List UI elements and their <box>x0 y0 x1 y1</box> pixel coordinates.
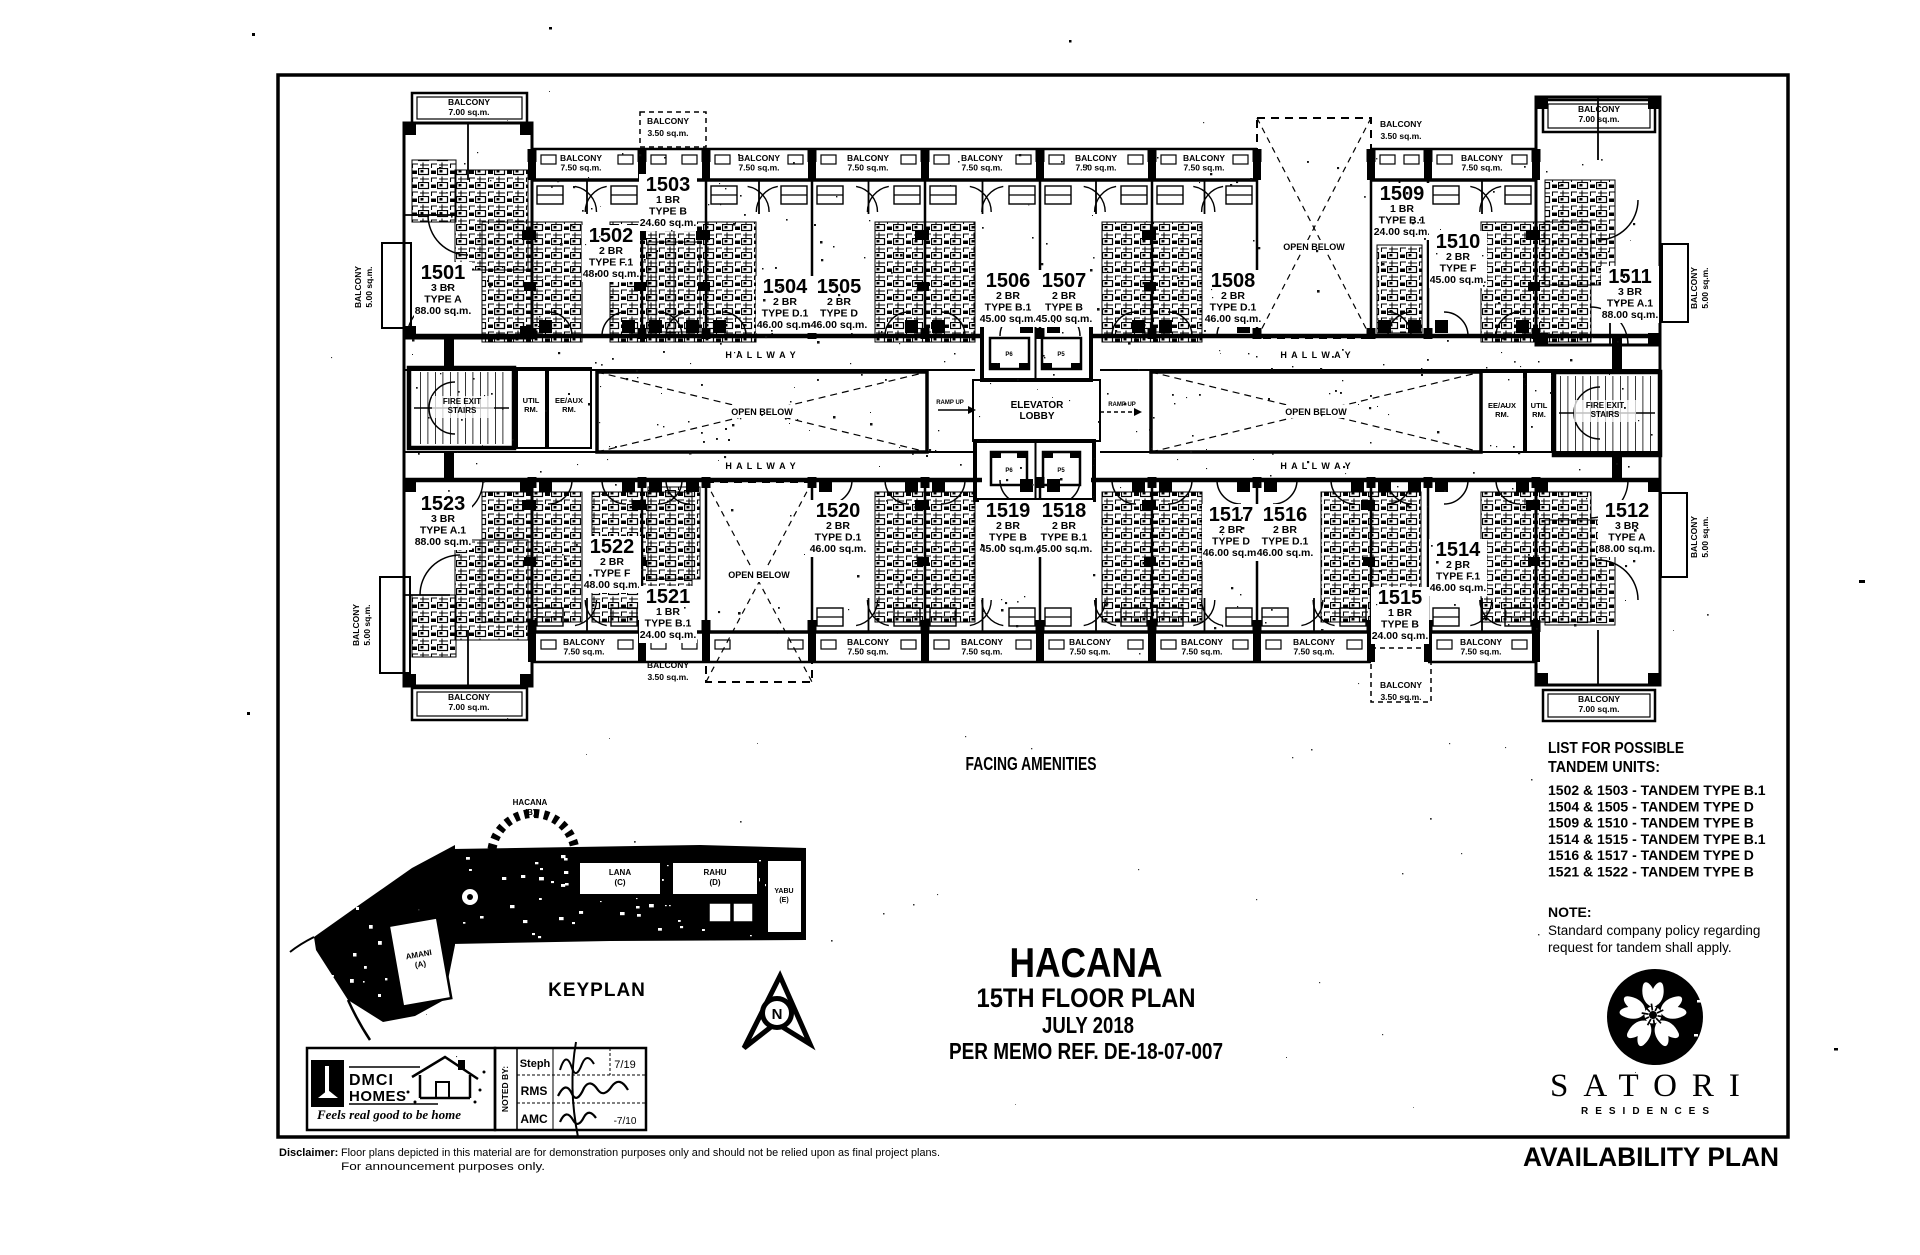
svg-text:FACING AMENITIES: FACING AMENITIES <box>966 754 1097 774</box>
svg-text:BALCONY: BALCONY <box>1069 637 1111 647</box>
svg-text:TYPE B: TYPE B <box>1045 302 1083 314</box>
svg-text:PER MEMO REF. DE-18-07-007: PER MEMO REF. DE-18-07-007 <box>949 1038 1223 1064</box>
svg-text:UTIL: UTIL <box>1531 401 1548 410</box>
svg-text:P6: P6 <box>1005 352 1013 358</box>
svg-text:7.00 sq.m.: 7.00 sq.m. <box>448 107 489 117</box>
svg-text:88.00 sq.m.: 88.00 sq.m. <box>1599 543 1656 555</box>
svg-text:7.00 sq.m.: 7.00 sq.m. <box>1578 114 1619 124</box>
svg-text:EE/AUX: EE/AUX <box>1488 401 1516 410</box>
svg-text:1506: 1506 <box>986 270 1031 292</box>
svg-text:TYPE B.1: TYPE B.1 <box>1041 532 1088 544</box>
svg-text:1516: 1516 <box>1263 504 1308 526</box>
svg-text:7.00 sq.m.: 7.00 sq.m. <box>1578 704 1619 714</box>
svg-text:7.50 sq.m.: 7.50 sq.m. <box>563 647 604 657</box>
svg-text:BALCONY: BALCONY <box>961 637 1003 647</box>
svg-text:UTIL: UTIL <box>523 396 540 405</box>
svg-text:P6: P6 <box>1005 468 1013 474</box>
svg-text:HACANA: HACANA <box>513 798 548 807</box>
svg-text:LIST FOR POSSIBLE: LIST FOR POSSIBLE <box>1548 740 1684 757</box>
svg-text:BALCONY: BALCONY <box>1578 694 1620 704</box>
svg-text:TYPE D.1: TYPE D.1 <box>1262 536 1309 548</box>
svg-text:88.00 sq.m.: 88.00 sq.m. <box>415 536 472 548</box>
svg-text:-7/10: -7/10 <box>614 1116 637 1127</box>
svg-text:(E): (E) <box>779 897 788 904</box>
svg-text:BALCONY: BALCONY <box>448 692 490 702</box>
svg-text:H A L L W A Y: H A L L W A Y <box>725 350 796 360</box>
svg-text:3 BR: 3 BR <box>1618 286 1642 298</box>
svg-text:H A L L W A Y: H A L L W A Y <box>1280 350 1351 360</box>
svg-text:2 BR: 2 BR <box>1273 524 1297 536</box>
svg-text:TANDEM UNITS:: TANDEM UNITS: <box>1548 759 1660 776</box>
svg-text:1 BR: 1 BR <box>1390 203 1414 215</box>
svg-text:AMC: AMC <box>520 1112 548 1126</box>
svg-text:45.00 sq.m.: 45.00 sq.m. <box>1036 543 1093 555</box>
svg-text:ELEVATOR: ELEVATOR <box>1011 400 1065 411</box>
svg-text:TYPE F: TYPE F <box>594 568 631 580</box>
svg-text:TYPE A.1: TYPE A.1 <box>1607 298 1653 310</box>
svg-text:7.50 sq.m.: 7.50 sq.m. <box>961 647 1002 657</box>
svg-text:H A L L W A Y: H A L L W A Y <box>1280 461 1351 471</box>
svg-text:2 BR: 2 BR <box>827 296 851 308</box>
svg-text:3.50 sq.m.: 3.50 sq.m. <box>1380 131 1421 141</box>
svg-text:RM.: RM. <box>1495 410 1509 419</box>
svg-text:2 BR: 2 BR <box>1052 520 1076 532</box>
svg-text:2 BR: 2 BR <box>1052 290 1076 302</box>
svg-text:BALCONY: BALCONY <box>1460 637 1502 647</box>
svg-text:P5: P5 <box>1057 352 1065 358</box>
svg-text:88.00 sq.m.: 88.00 sq.m. <box>1602 309 1659 321</box>
svg-text:BALCONY: BALCONY <box>1380 119 1422 129</box>
svg-text:7.00 sq.m.: 7.00 sq.m. <box>448 702 489 712</box>
svg-text:2 BR: 2 BR <box>1446 559 1470 571</box>
svg-text:1510: 1510 <box>1436 231 1481 253</box>
svg-text:1521 & 1522 - TANDEM TYPE B: 1521 & 1522 - TANDEM TYPE B <box>1548 864 1754 880</box>
svg-text:45.00 sq.m.: 45.00 sq.m. <box>980 543 1037 555</box>
svg-text:TYPE B.1: TYPE B.1 <box>985 302 1032 314</box>
svg-text:TYPE F.1: TYPE F.1 <box>589 257 634 269</box>
svg-text:TYPE B: TYPE B <box>1381 619 1419 631</box>
svg-text:BALCONY: BALCONY <box>1578 104 1620 114</box>
svg-text:45.00 sq.m.: 45.00 sq.m. <box>1430 274 1487 286</box>
svg-text:H A L L W A Y: H A L L W A Y <box>725 461 796 471</box>
svg-text:Steph: Steph <box>520 1058 551 1070</box>
svg-text:2 BR: 2 BR <box>826 520 850 532</box>
svg-text:TYPE B.1: TYPE B.1 <box>645 618 692 630</box>
svg-text:1504 & 1505 - TANDEM TYPE D: 1504 & 1505 - TANDEM TYPE D <box>1548 798 1754 814</box>
svg-text:TYPE D.1: TYPE D.1 <box>762 308 809 320</box>
svg-text:24.00 sq.m.: 24.00 sq.m. <box>640 629 697 641</box>
svg-text:1508: 1508 <box>1211 270 1256 292</box>
svg-text:TYPE F: TYPE F <box>1440 263 1477 275</box>
svg-text:TYPE A: TYPE A <box>1608 532 1646 544</box>
svg-text:NOTE:: NOTE: <box>1548 904 1592 920</box>
svg-text:TYPE A: TYPE A <box>424 294 462 306</box>
svg-text:BALCONY: BALCONY <box>560 153 602 163</box>
svg-text:1 BR: 1 BR <box>656 194 680 206</box>
svg-text:DMCI: DMCI <box>349 1072 394 1089</box>
svg-text:46.00 sq.m.: 46.00 sq.m. <box>1205 313 1262 325</box>
svg-text:1 BR: 1 BR <box>1388 607 1412 619</box>
svg-text:Standard company policy regard: Standard company policy regarding <box>1548 923 1760 938</box>
svg-text:2 BR: 2 BR <box>1446 251 1470 263</box>
svg-text:88.00 sq.m.: 88.00 sq.m. <box>415 305 472 317</box>
svg-text:request for tandem shall apply: request for tandem shall apply. <box>1548 940 1732 955</box>
svg-text:(D): (D) <box>709 878 720 887</box>
svg-text:BALCONY: BALCONY <box>563 637 605 647</box>
svg-text:YABU: YABU <box>774 888 793 895</box>
svg-text:1517: 1517 <box>1209 504 1254 526</box>
svg-text:BALCONY: BALCONY <box>1183 153 1225 163</box>
svg-text:(C): (C) <box>614 878 625 887</box>
svg-text:1511: 1511 <box>1608 266 1651 288</box>
svg-text:OPEN BELOW: OPEN BELOW <box>1283 242 1345 252</box>
svg-text:2 BR: 2 BR <box>996 520 1020 532</box>
svg-text:BALCONY: BALCONY <box>847 153 889 163</box>
svg-text:2 BR: 2 BR <box>773 296 797 308</box>
svg-text:7.50 sq.m.: 7.50 sq.m. <box>961 163 1002 173</box>
svg-text:3.50 sq.m.: 3.50 sq.m. <box>647 672 688 682</box>
svg-text:TYPE B: TYPE B <box>649 206 687 218</box>
svg-text:OPEN BELOW: OPEN BELOW <box>1285 407 1347 417</box>
svg-text:BALCONY: BALCONY <box>1075 153 1117 163</box>
svg-text:5.00 sq.m.: 5.00 sq.m. <box>362 604 372 645</box>
svg-text:RM.: RM. <box>562 405 576 414</box>
svg-text:2 BR: 2 BR <box>599 245 623 257</box>
svg-text:1523: 1523 <box>421 493 466 515</box>
svg-text:1507: 1507 <box>1042 270 1087 292</box>
svg-text:1502: 1502 <box>589 225 634 247</box>
svg-text:46.00 sq.m.: 46.00 sq.m. <box>811 319 868 331</box>
svg-text:OPEN BELOW: OPEN BELOW <box>728 570 790 580</box>
svg-text:BALCONY: BALCONY <box>351 604 361 646</box>
svg-text:AVAILABILITY PLAN: AVAILABILITY PLAN <box>1523 1142 1779 1172</box>
svg-text:46.00 sq.m.: 46.00 sq.m. <box>810 543 867 555</box>
svg-text:Feels real good to be home: Feels real good to be home <box>316 1107 461 1122</box>
svg-text:3.50 sq.m.: 3.50 sq.m. <box>1380 692 1421 702</box>
svg-text:BALCONY: BALCONY <box>353 266 363 308</box>
svg-text:RAHU: RAHU <box>703 868 726 877</box>
svg-text:HOMES: HOMES <box>349 1088 407 1105</box>
svg-text:STAIRS: STAIRS <box>448 406 477 415</box>
svg-text:BALCONY: BALCONY <box>1689 267 1699 309</box>
svg-text:3.50 sq.m.: 3.50 sq.m. <box>647 128 688 138</box>
svg-text:LANA: LANA <box>609 868 631 877</box>
svg-text:7.50 sq.m.: 7.50 sq.m. <box>560 163 601 173</box>
svg-text:BALCONY: BALCONY <box>1293 637 1335 647</box>
svg-text:24.00 sq.m.: 24.00 sq.m. <box>1372 630 1429 642</box>
svg-text:TYPE A.1: TYPE A.1 <box>420 525 466 537</box>
svg-text:7.50 sq.m.: 7.50 sq.m. <box>1181 647 1222 657</box>
svg-text:RAMP UP: RAMP UP <box>936 400 964 406</box>
svg-text:TYPE D: TYPE D <box>1212 536 1250 548</box>
svg-text:2 BR: 2 BR <box>1221 290 1245 302</box>
svg-text:1514 & 1515 - TANDEM TYPE B.1: 1514 & 1515 - TANDEM TYPE B.1 <box>1548 831 1766 847</box>
svg-text:TYPE B: TYPE B <box>989 532 1027 544</box>
svg-text:BALCONY: BALCONY <box>448 97 490 107</box>
svg-text:46.00 sq.m.: 46.00 sq.m. <box>1203 547 1260 559</box>
svg-text:TYPE D: TYPE D <box>820 308 858 320</box>
svg-text:5.00 sq.m.: 5.00 sq.m. <box>1700 267 1710 308</box>
svg-text:FIRE EXIT: FIRE EXIT <box>443 397 481 406</box>
svg-text:7.50 sq.m.: 7.50 sq.m. <box>847 647 888 657</box>
svg-text:1518: 1518 <box>1042 500 1087 522</box>
svg-text:48.00 sq.m.: 48.00 sq.m. <box>583 268 640 280</box>
svg-text:2 BR: 2 BR <box>600 556 624 568</box>
svg-text:BALCONY: BALCONY <box>1461 153 1503 163</box>
svg-text:BALCONY: BALCONY <box>847 637 889 647</box>
svg-text:JULY 2018: JULY 2018 <box>1042 1012 1134 1038</box>
svg-text:7.50 sq.m.: 7.50 sq.m. <box>1075 163 1116 173</box>
svg-text:45.00 sq.m.: 45.00 sq.m. <box>1036 313 1093 325</box>
svg-text:45.00 sq.m.: 45.00 sq.m. <box>980 313 1037 325</box>
svg-text:1501: 1501 <box>421 262 466 284</box>
svg-text:TYPE B.1: TYPE B.1 <box>1379 215 1426 227</box>
svg-text:BALCONY: BALCONY <box>647 116 689 126</box>
svg-text:Disclaimer:: Disclaimer: <box>279 1147 338 1159</box>
svg-text:RESIDENCES: RESIDENCES <box>1581 1106 1716 1117</box>
svg-text:48.00 sq.m.: 48.00 sq.m. <box>584 579 641 591</box>
svg-text:1514: 1514 <box>1436 539 1481 561</box>
svg-text:1512: 1512 <box>1605 500 1650 522</box>
svg-text:5.00 sq.m.: 5.00 sq.m. <box>364 266 374 307</box>
svg-text:1522: 1522 <box>590 536 635 558</box>
svg-text:7.50 sq.m.: 7.50 sq.m. <box>1293 647 1334 657</box>
svg-text:1504: 1504 <box>763 276 808 298</box>
svg-text:24.00 sq.m.: 24.00 sq.m. <box>1374 226 1431 238</box>
svg-text:HACANA: HACANA <box>1010 939 1163 986</box>
svg-text:1515: 1515 <box>1378 587 1423 609</box>
svg-text:3 BR: 3 BR <box>431 282 455 294</box>
svg-text:RM.: RM. <box>1532 410 1546 419</box>
svg-text:Floor plans depicted in this m: Floor plans depicted in this material ar… <box>341 1147 940 1159</box>
svg-text:SATORI: SATORI <box>1550 1068 1755 1104</box>
svg-text:N: N <box>772 1006 783 1023</box>
svg-text:24.60 sq.m.: 24.60 sq.m. <box>640 217 697 229</box>
svg-text:BALCONY: BALCONY <box>1380 680 1422 690</box>
svg-text:RAMP UP: RAMP UP <box>1108 402 1136 408</box>
svg-text:BALCONY: BALCONY <box>1689 516 1699 558</box>
svg-text:EE/AUX: EE/AUX <box>555 396 583 405</box>
svg-text:NOTED BY:: NOTED BY: <box>500 1066 510 1112</box>
svg-text:1503: 1503 <box>646 174 691 196</box>
svg-text:KEYPLAN: KEYPLAN <box>548 980 646 1001</box>
svg-text:7.50 sq.m.: 7.50 sq.m. <box>1460 647 1501 657</box>
svg-text:1520: 1520 <box>816 500 861 522</box>
svg-text:For announcement purposes only: For announcement purposes only. <box>341 1161 545 1173</box>
svg-text:15TH FLOOR PLAN: 15TH FLOOR PLAN <box>977 983 1196 1013</box>
svg-text:BALCONY: BALCONY <box>1181 637 1223 647</box>
svg-text:1519: 1519 <box>986 500 1031 522</box>
svg-text:7.50 sq.m.: 7.50 sq.m. <box>1069 647 1110 657</box>
svg-text:7.50 sq.m.: 7.50 sq.m. <box>738 163 779 173</box>
svg-text:46.00 sq.m.: 46.00 sq.m. <box>757 319 814 331</box>
svg-text:46.00 sq.m.: 46.00 sq.m. <box>1257 547 1314 559</box>
svg-text:BALCONY: BALCONY <box>738 153 780 163</box>
svg-text:1 BR: 1 BR <box>656 606 680 618</box>
svg-text:7/19: 7/19 <box>614 1059 635 1071</box>
svg-text:BALCONY: BALCONY <box>647 660 689 670</box>
svg-text:TYPE D.1: TYPE D.1 <box>1210 302 1257 314</box>
svg-text:1521: 1521 <box>646 586 691 608</box>
svg-text:3 BR: 3 BR <box>431 513 455 525</box>
svg-text:1502 & 1503 - TANDEM TYPE B.1: 1502 & 1503 - TANDEM TYPE B.1 <box>1548 782 1766 798</box>
svg-text:RM.: RM. <box>524 405 538 414</box>
svg-text:TYPE D.1: TYPE D.1 <box>815 532 862 544</box>
svg-text:5.00 sq.m.: 5.00 sq.m. <box>1700 516 1710 557</box>
svg-text:1516 & 1517 - TANDEM TYPE D: 1516 & 1517 - TANDEM TYPE D <box>1548 847 1754 863</box>
svg-text:BALCONY: BALCONY <box>961 153 1003 163</box>
svg-text:LOBBY: LOBBY <box>1020 411 1055 422</box>
svg-text:1509: 1509 <box>1380 183 1425 205</box>
svg-text:TYPE F.1: TYPE F.1 <box>1436 571 1481 583</box>
svg-text:STAIRS: STAIRS <box>1591 410 1620 419</box>
svg-text:1509 & 1510 - TANDEM TYPE B: 1509 & 1510 - TANDEM TYPE B <box>1548 815 1754 831</box>
svg-text:2 BR: 2 BR <box>996 290 1020 302</box>
svg-text:7.50 sq.m.: 7.50 sq.m. <box>847 163 888 173</box>
svg-text:46.00 sq.m.: 46.00 sq.m. <box>1430 582 1487 594</box>
svg-text:7.50 sq.m.: 7.50 sq.m. <box>1461 163 1502 173</box>
svg-text:RMS: RMS <box>521 1084 548 1098</box>
svg-text:7.50 sq.m.: 7.50 sq.m. <box>1183 163 1224 173</box>
svg-text:P5: P5 <box>1057 468 1065 474</box>
